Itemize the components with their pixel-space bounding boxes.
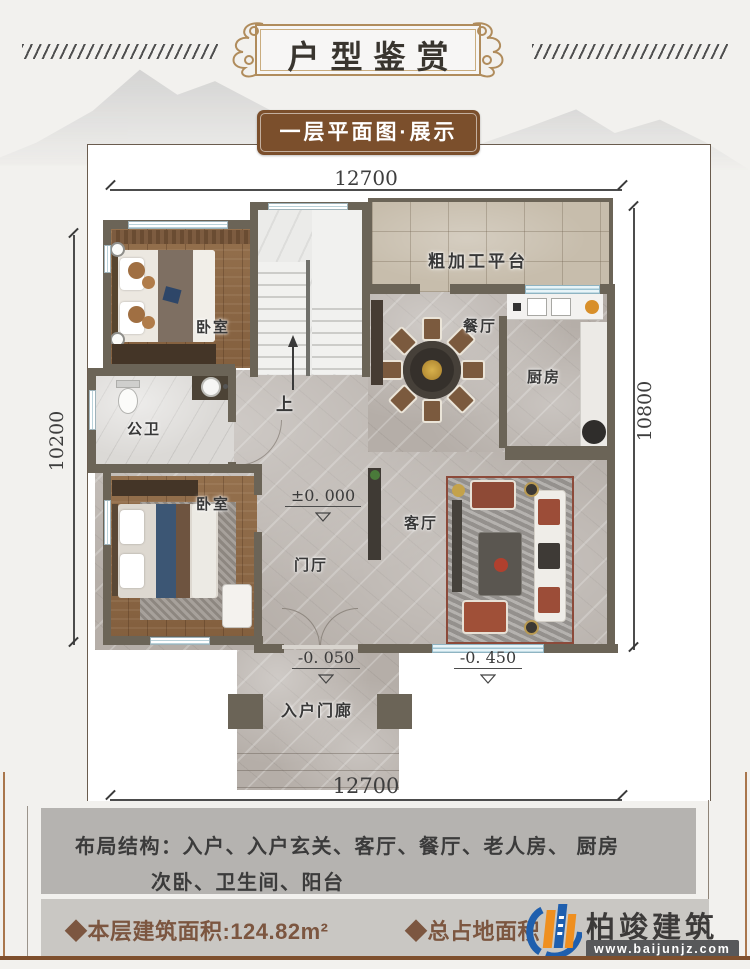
sofa — [534, 490, 566, 622]
bottom-frame-line-left — [27, 806, 28, 958]
dresser-table — [222, 584, 252, 628]
stair-steps-right — [312, 298, 362, 374]
elevation-porch: -0. 050 — [286, 648, 366, 688]
room-label-porch: 入户门廊 — [281, 697, 353, 721]
elevation-triangle — [315, 512, 331, 522]
window — [150, 637, 210, 645]
dim-bottom: 12700 — [110, 774, 622, 798]
wall — [505, 446, 615, 460]
title-frame: 户型鉴赏 — [255, 24, 481, 76]
porch-column — [377, 694, 412, 729]
wall — [254, 644, 284, 653]
wall — [103, 220, 111, 372]
subtitle-badge: 一层平面图·展示 — [257, 110, 480, 155]
side-stool-top — [524, 482, 539, 497]
window — [104, 500, 111, 545]
wall — [254, 471, 262, 495]
room-label-bathroom: 公卫 — [127, 418, 161, 439]
layout-label: 布局结构： — [75, 830, 183, 859]
coffee-table — [478, 532, 522, 596]
dim-line-bottom — [110, 799, 622, 801]
wall — [103, 473, 111, 645]
page: 户型鉴赏 一层平面图·展示 — [0, 0, 750, 969]
window — [104, 245, 111, 273]
room-label-foyer: 门厅 — [294, 554, 328, 575]
layout-line2-text: 次卧、卫生间、阳台 — [151, 866, 345, 895]
hall-cabinet — [368, 468, 381, 560]
stair-rail — [306, 260, 310, 376]
layout-line1-text: 入户、入户玄关、客厅、餐厅、老人房、 厨房 — [183, 830, 620, 859]
toilet — [116, 380, 142, 416]
armchair-bottom — [462, 600, 508, 634]
elevation-foyer: ±0. 000 — [283, 486, 363, 526]
room-label-bedroom-top: 卧室 — [196, 316, 230, 337]
wardrobe-top — [112, 344, 216, 364]
floor-area-text: ◆本层建筑面积:124.82m² — [65, 914, 329, 946]
wall — [368, 284, 420, 294]
wall — [544, 644, 618, 653]
wall — [607, 284, 615, 653]
dim-top: 12700 — [110, 166, 622, 190]
bedside-stool — [110, 242, 125, 257]
wall — [228, 462, 236, 472]
dim-left: 10200 — [46, 396, 68, 486]
room-label-dining: 餐厅 — [463, 315, 497, 336]
window-kitchen — [525, 285, 600, 294]
kitchen-counter-top — [507, 294, 603, 320]
room-label-platform: 粗加工平台 — [428, 247, 528, 272]
layout-structure-box: 布局结构： 入户、入户玄关、客厅、餐厅、老人房、 厨房 次卧、卫生间、阳台 — [41, 808, 696, 894]
wall — [450, 284, 525, 294]
elevation-triangle — [480, 674, 496, 684]
porch-column — [228, 694, 263, 729]
curtain-band — [112, 230, 252, 244]
armchair-top — [470, 480, 516, 510]
plant — [370, 470, 380, 480]
room-label-bedroom-bottom: 卧室 — [196, 493, 230, 514]
layout-line1: 布局结构： 入户、入户玄关、客厅、餐厅、老人房、 厨房 — [75, 830, 620, 859]
hash-decoration-right — [532, 44, 728, 59]
dim-right: 10800 — [634, 366, 656, 456]
wall — [499, 316, 507, 448]
wall — [254, 532, 262, 645]
page-edge-line-left — [3, 772, 5, 958]
site-area-text: ◆总占地面积 — [405, 914, 540, 946]
dining-cabinet — [371, 300, 383, 385]
side-stool-bottom — [524, 620, 539, 635]
wall — [358, 644, 432, 653]
wardrobe-bottom — [112, 480, 198, 496]
stair-landing — [312, 209, 362, 299]
window — [128, 221, 228, 229]
gold-stool — [452, 484, 465, 497]
dim-line-top — [110, 189, 622, 191]
stair-steps-left — [258, 262, 306, 374]
stove — [582, 420, 606, 444]
dim-line-right — [633, 208, 635, 650]
window — [268, 203, 348, 210]
hash-decoration-left — [22, 44, 218, 59]
tv-console — [452, 500, 462, 592]
stair-up-label: 上 — [276, 390, 295, 415]
room-label-kitchen: 厨房 — [527, 366, 561, 387]
floor-platform — [368, 198, 613, 292]
wall — [250, 202, 258, 377]
wall — [88, 368, 235, 376]
dim-line-left — [73, 235, 75, 645]
stair-arrow-head — [288, 335, 298, 347]
bed-bottom — [112, 502, 222, 602]
stair-direction-arrow — [292, 346, 294, 390]
brand-logo: 柏竣建筑 www.baijunjz.com — [524, 898, 750, 962]
room-label-living: 客厅 — [404, 512, 438, 533]
elevation-living: -0. 450 — [448, 648, 528, 688]
page-title: 户型鉴赏 — [257, 32, 479, 78]
window — [89, 390, 96, 430]
logo-icon — [524, 898, 582, 960]
elevation-triangle — [318, 674, 334, 684]
bottom-divider-line — [0, 956, 750, 960]
wall — [228, 368, 236, 422]
subtitle-label: 一层平面图·展示 — [257, 110, 480, 155]
